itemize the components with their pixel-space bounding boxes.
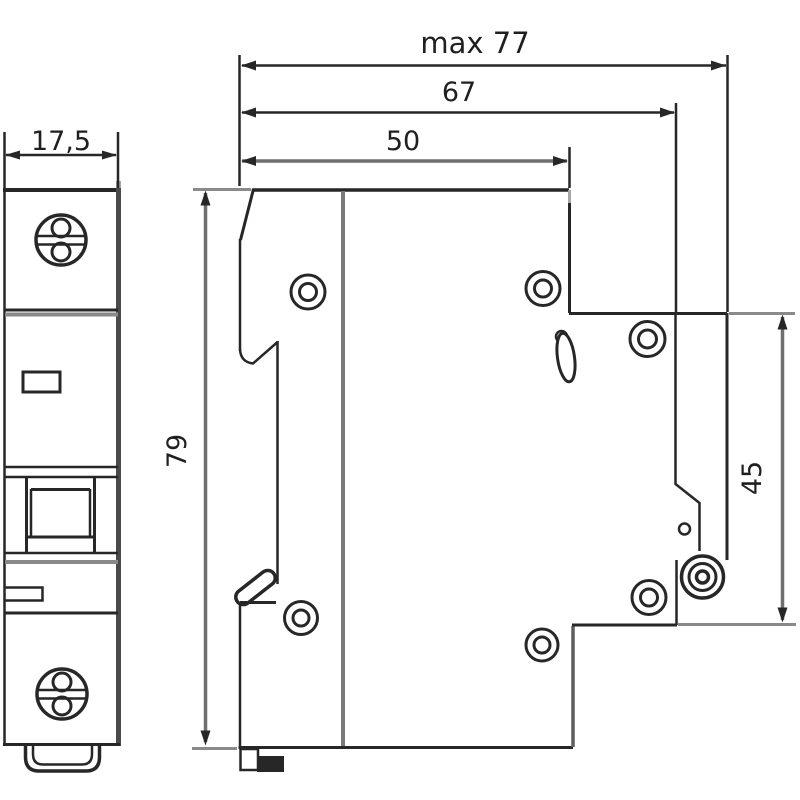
- dim-label-depth-67: 67: [442, 77, 476, 108]
- toggle-rocker: [27, 477, 95, 553]
- front-section-lines: [5, 310, 118, 613]
- clip-pull-tab: [241, 749, 284, 771]
- dim-label-height-79: 79: [162, 434, 193, 468]
- screw-head-top-icon: [36, 215, 86, 265]
- rivet-icon: [526, 629, 558, 661]
- rivet-icon: [291, 275, 325, 309]
- clip-pivot-hole: [679, 524, 690, 535]
- front-foot: [26, 746, 100, 771]
- dimension-depth-67: 67: [241, 77, 676, 313]
- rivet-icon: [632, 581, 666, 615]
- technical-drawing-page: 17,5 max 77 67 50 79: [0, 0, 800, 800]
- label-window: [23, 372, 60, 392]
- din-recess-contour: [676, 314, 700, 551]
- dim-label-depth-50: 50: [386, 126, 420, 157]
- side-outline: [239, 189, 728, 748]
- marking-slot: [4, 588, 43, 601]
- rivet-icon: [526, 272, 560, 306]
- front-view: [3, 181, 120, 771]
- dim-label-overall-depth: max 77: [420, 26, 529, 60]
- dim-label-rail-45: 45: [737, 461, 768, 495]
- dimension-height-79: 79: [162, 190, 251, 749]
- dimension-depth-50: 50: [241, 126, 570, 188]
- din-clip: [682, 556, 724, 598]
- rivet-icon: [630, 322, 665, 357]
- dimension-front-width: 17,5: [5, 126, 119, 188]
- screw-head-bottom-icon: [37, 669, 87, 719]
- rivet-icon: [285, 602, 318, 635]
- dimension-overall-depth: max 77: [240, 26, 728, 312]
- dim-label-front-width: 17,5: [31, 126, 91, 157]
- side-view: [233, 189, 727, 771]
- mcb-dimensional-drawing: 17,5 max 77 67 50 79: [0, 0, 800, 800]
- spring-slot: [554, 331, 578, 383]
